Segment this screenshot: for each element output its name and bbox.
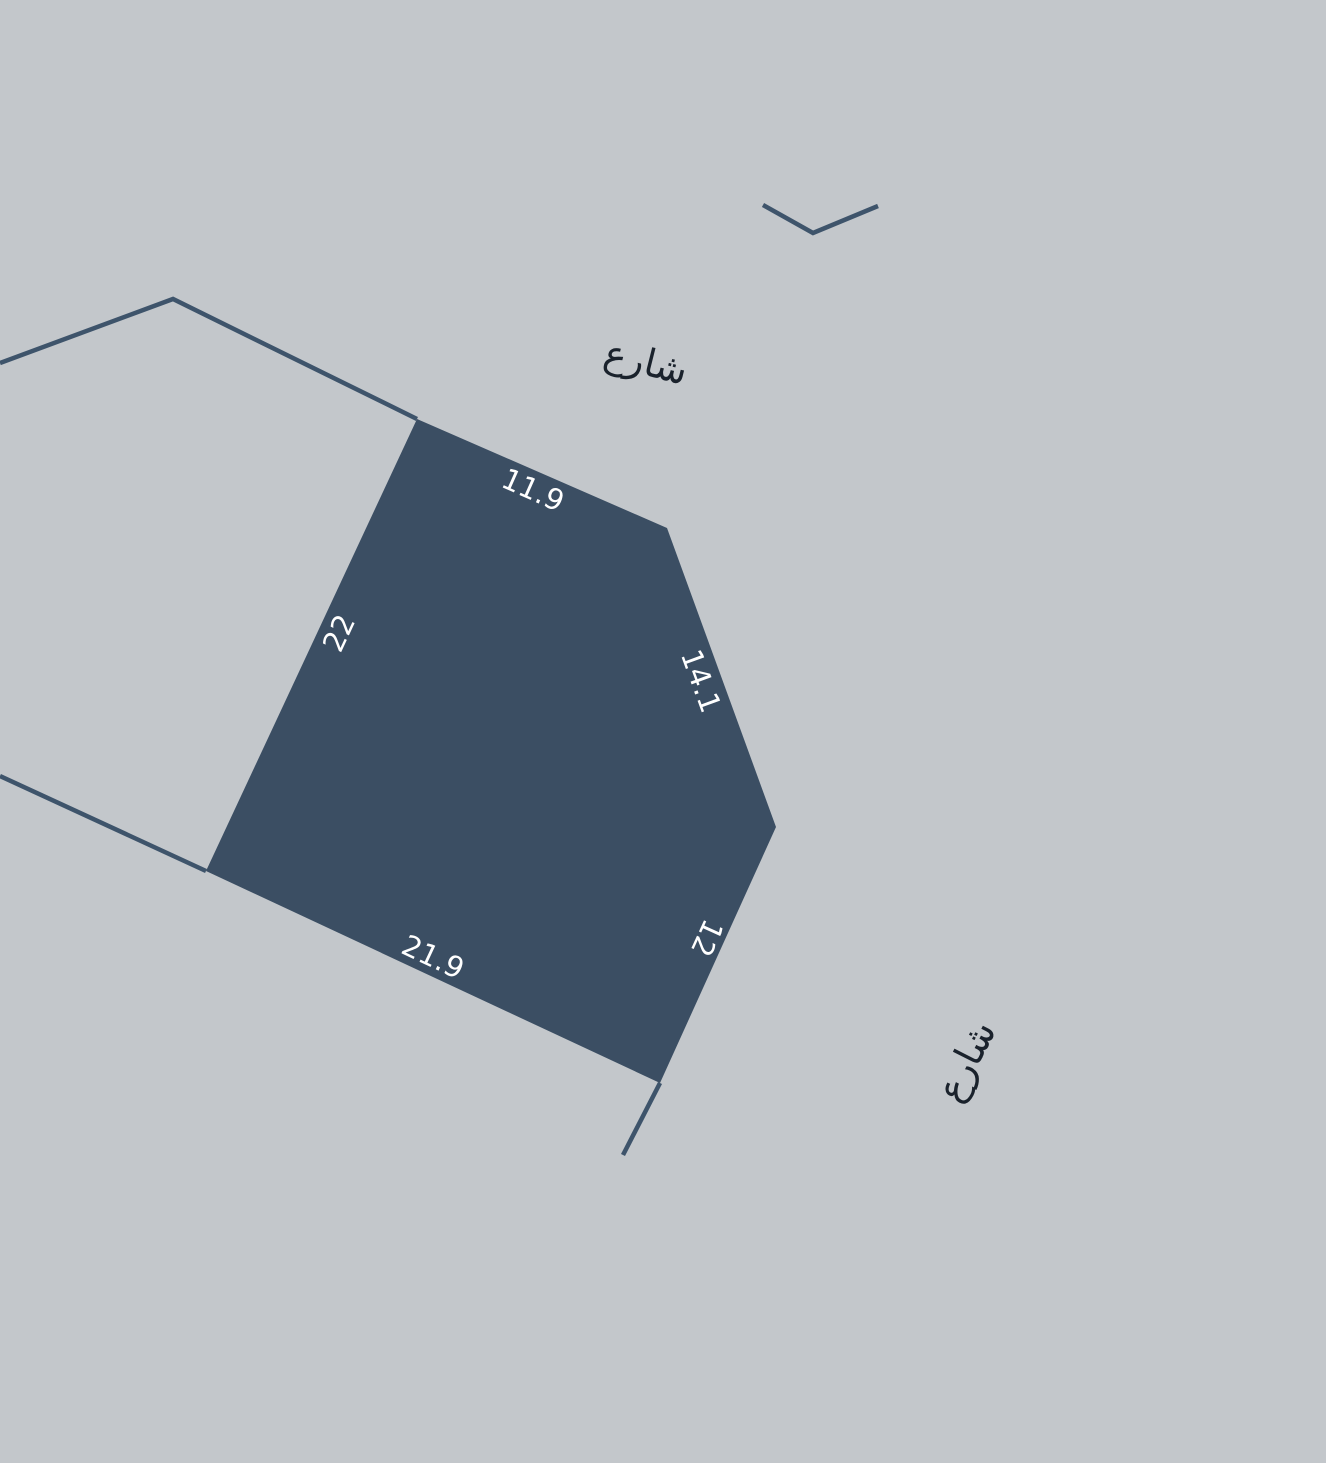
map-viewport[interactable]: 11.9 14.1 12 21.9 22 شارع شارع [0,0,1326,1463]
cadastral-map-canvas[interactable]: 11.9 14.1 12 21.9 22 شارع شارع [0,0,1326,1463]
